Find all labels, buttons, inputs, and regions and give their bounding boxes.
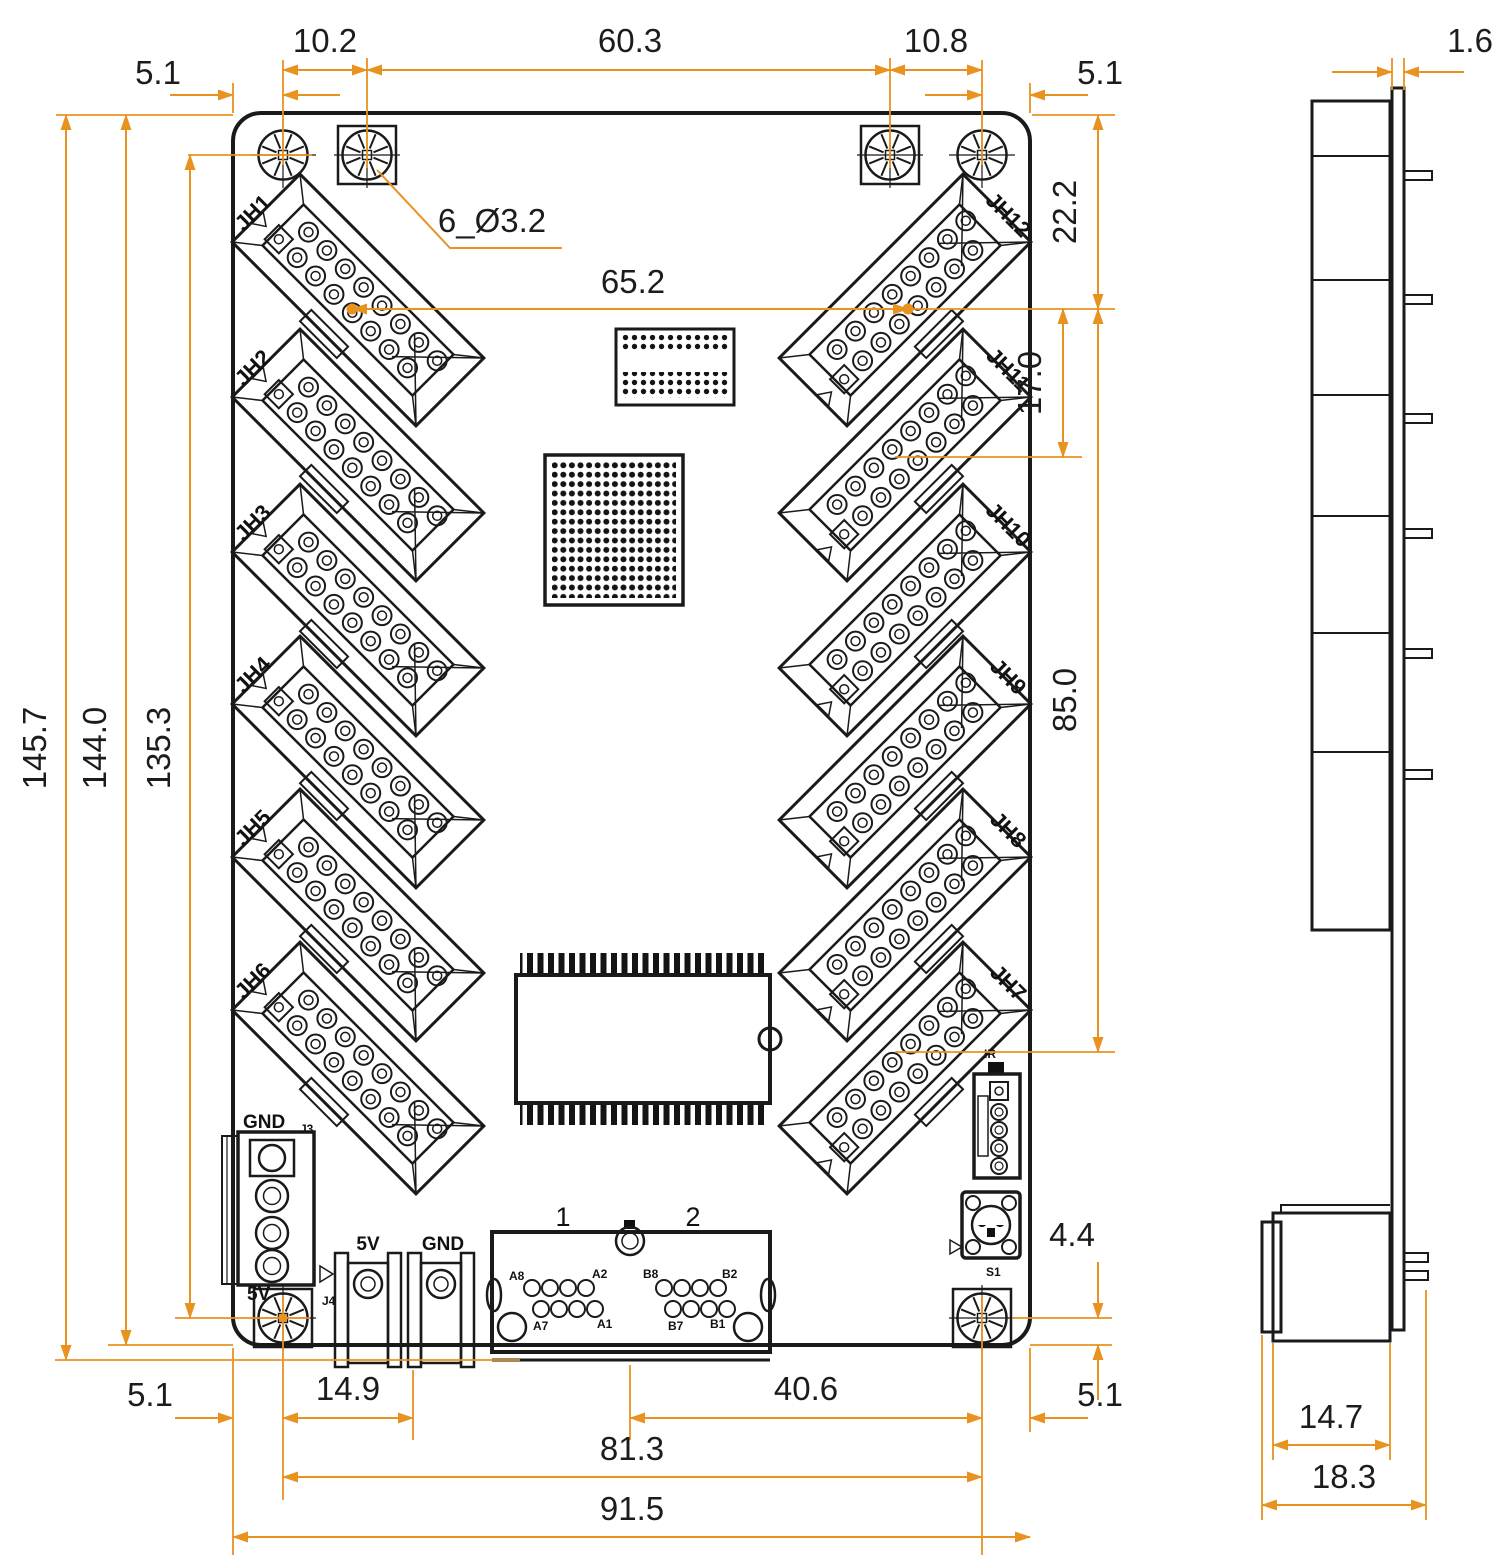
pin1-triangle-icon <box>320 1266 333 1282</box>
side-view <box>1262 88 1432 1341</box>
connector-label-jh5: JH5 <box>230 805 276 851</box>
dim-bottom-left-margin: 5.1 <box>127 1376 173 1413</box>
connector-bank-right: JH12 JH11 JH10 JH9 JH8 JH7 <box>779 174 1036 1199</box>
pin-b1-label: B1 <box>710 1317 726 1331</box>
smd-ic-footprint <box>516 953 781 1125</box>
pin-a2-label: A2 <box>592 1267 608 1281</box>
gnd-block-label: GND <box>243 1112 285 1133</box>
dual-row-header-footprint <box>616 329 734 405</box>
dim-power-offset: 14.9 <box>316 1370 380 1407</box>
side-pcb-slab <box>1392 88 1404 1330</box>
pin-b8-label: B8 <box>643 1267 659 1281</box>
ir-header: IR <box>974 1047 1020 1178</box>
dim-hole-to-edge: 4.4 <box>1049 1216 1095 1253</box>
connector-label-jh9: JH9 <box>985 654 1031 700</box>
dim-hole-span-bottom: 81.3 <box>600 1430 664 1467</box>
pin-a1-label: A1 <box>597 1317 613 1331</box>
port2-pins <box>656 1280 735 1317</box>
dim-hole-pitch-right: 10.8 <box>904 22 968 59</box>
connector-label-jh2: JH2 <box>230 345 276 391</box>
dim-hole-note: 6_Ø3.2 <box>438 202 546 239</box>
button-triangle-icon <box>950 1240 962 1254</box>
screw-terminal-5v: 5V <box>335 1234 401 1367</box>
dim-connector-depth: 14.7 <box>1299 1398 1363 1435</box>
connector-label-jh7: JH7 <box>985 960 1031 1006</box>
dim-overall-depth: 18.3 <box>1312 1458 1376 1495</box>
port1-label: 1 <box>555 1202 570 1232</box>
dim-hole-pitch-left: 10.2 <box>293 22 357 59</box>
mounting-holes <box>250 122 1015 1351</box>
pwr-5v-ref: J4 <box>322 1294 336 1308</box>
side-pins <box>1404 171 1432 779</box>
connector-bank-left: JH1 JH2 JH3 JH4 JH5 JH6 <box>226 174 483 1199</box>
screw-terminal-gnd: GND <box>408 1234 474 1367</box>
dim-connector-span-h: 65.2 <box>601 263 665 300</box>
port1-pins <box>524 1280 603 1317</box>
terminal-gnd-label: GND <box>422 1234 464 1255</box>
dim-hole-span-v: 135.3 <box>140 707 177 790</box>
pin-a7-label: A7 <box>533 1319 549 1333</box>
connector-label-jh1: JH1 <box>230 190 276 236</box>
terminal-5v-label: 5V <box>356 1234 380 1255</box>
dual-port-footprint: 1 2 A8 A2 A7 A1 B8 B2 B7 B1 <box>487 1202 775 1360</box>
drawing-canvas: JH1 JH2 JH3 JH4 JH5 JH6 JH12 JH11 JH10 J… <box>0 0 1511 1557</box>
dim-port-to-hole: 40.6 <box>774 1370 838 1407</box>
dim-connector-span-v: 85.0 <box>1046 668 1083 732</box>
dim-bottom-right-margin: 5.1 <box>1077 1376 1123 1413</box>
dim-overall-height: 145.7 <box>16 707 53 790</box>
pin-a8-label: A8 <box>509 1269 525 1283</box>
connector-label-jh6: JH6 <box>230 958 276 1004</box>
dim-edge-to-pin: 22.2 <box>1046 180 1083 244</box>
ir-label: IR <box>984 1047 996 1061</box>
dimension-lines <box>66 70 1464 1537</box>
button-ref: S1 <box>986 1265 1001 1279</box>
port2-label: 2 <box>685 1202 700 1232</box>
push-button-s1: S1 <box>950 1192 1020 1279</box>
connector-label-jh4: JH4 <box>230 651 277 698</box>
connector-label-jh3: JH3 <box>230 500 276 546</box>
pcb-dimension-drawing: JH1 JH2 JH3 JH4 JH5 JH6 JH12 JH11 JH10 J… <box>0 0 1511 1557</box>
pin-b7-label: B7 <box>668 1319 684 1333</box>
dim-top-left-margin: 5.1 <box>135 54 181 91</box>
dim-board-width: 91.5 <box>600 1490 664 1527</box>
gnd-block-ref: J3 <box>300 1122 314 1136</box>
dim-hole-span-top: 60.3 <box>598 22 662 59</box>
dim-pcb-thickness: 1.6 <box>1447 22 1493 59</box>
bga-chip-footprint <box>545 455 683 605</box>
pwr-5v-label: 5V <box>247 1284 271 1305</box>
dim-connector-pitch: 17.0 <box>1011 351 1048 415</box>
connector-label-jh8: JH8 <box>985 807 1031 853</box>
dim-top-right-margin: 5.1 <box>1077 54 1123 91</box>
power-terminal-block-j3: GND J3 5V J4 <box>222 1112 336 1308</box>
dim-board-height: 144.0 <box>76 707 113 790</box>
pin-b2-label: B2 <box>722 1267 738 1281</box>
